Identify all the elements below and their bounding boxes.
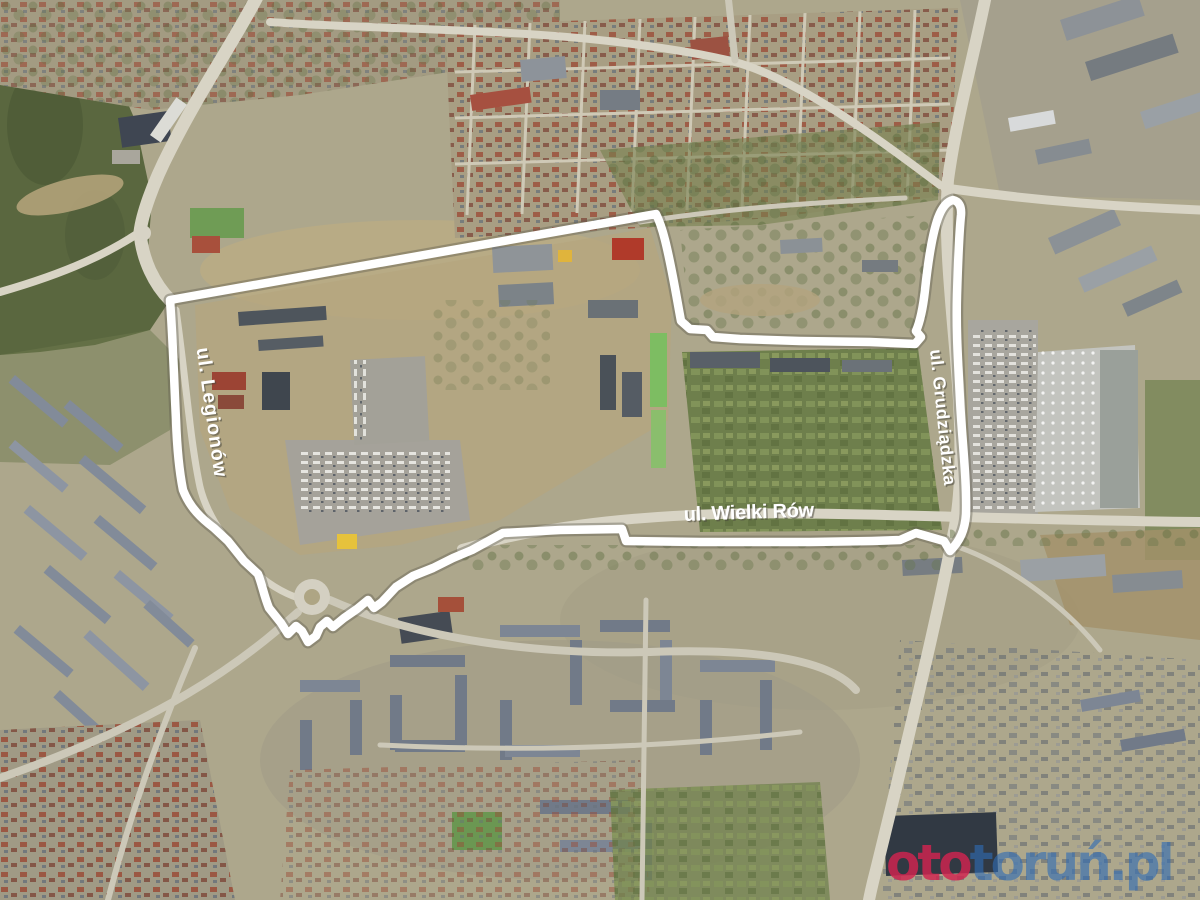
bus-depot-parking	[300, 452, 450, 514]
tree-row-east	[950, 528, 1200, 546]
red-building	[612, 238, 644, 260]
yellow-building-south	[337, 534, 357, 549]
notch-area	[680, 215, 930, 330]
small-roundabout	[135, 225, 151, 241]
watermark: ototoruń.pl	[886, 838, 1172, 888]
tree-row-south	[460, 545, 940, 570]
street-label-wielki-row: ul. Wielki Rów	[683, 499, 815, 526]
satellite-basemap: ul. Legionów ul. Legionów ul. Grudziądzk…	[0, 0, 1200, 900]
sports-field	[190, 208, 244, 238]
yellow-building-north	[558, 250, 572, 262]
aerial-map: ul. Legionów ul. Legionów ul. Grudziądzk…	[0, 0, 1200, 900]
green-building	[650, 333, 667, 407]
sports-court	[192, 236, 220, 253]
industrial-northeast	[960, 0, 1200, 200]
watermark-torun-pl: toruń.pl	[970, 834, 1172, 892]
watermark-oto: oto	[886, 834, 970, 892]
